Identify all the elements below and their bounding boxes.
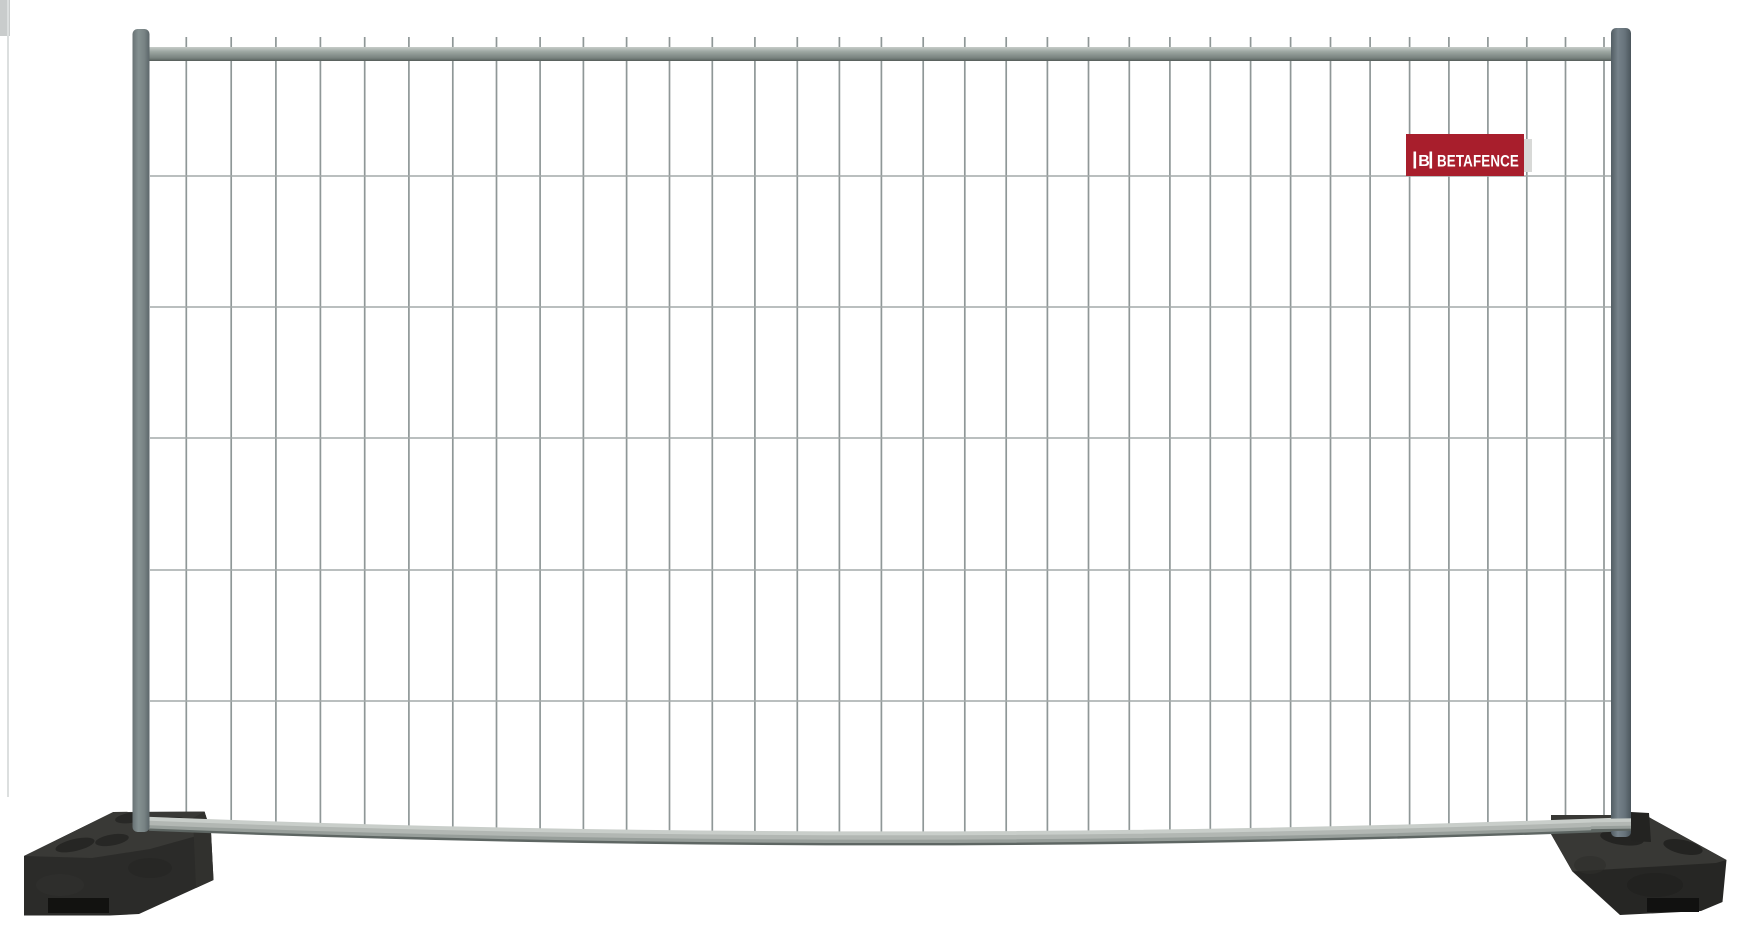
svg-text:BETAFENCE: BETAFENCE [1437,152,1519,171]
svg-text:B: B [1418,153,1430,170]
